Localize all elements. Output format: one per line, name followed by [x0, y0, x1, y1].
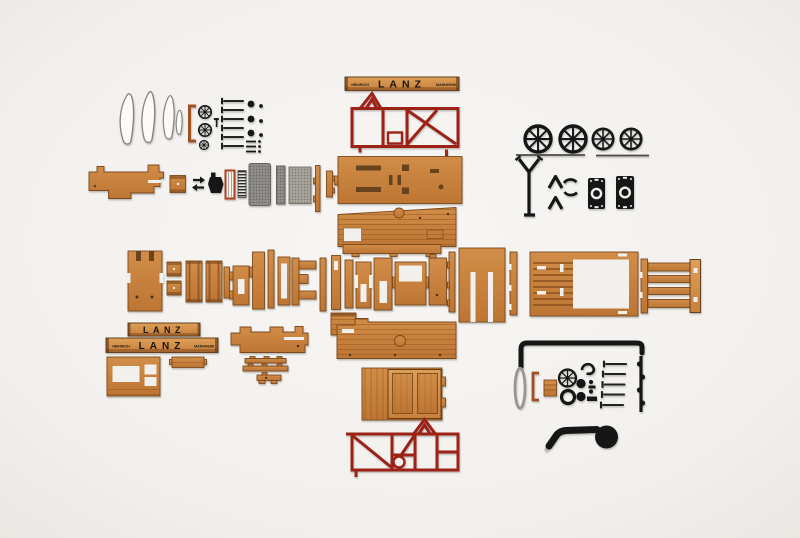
planked-side-panel-a: [338, 208, 456, 247]
beam-top-left-text: HEINRICH: [351, 83, 369, 87]
notched-strip: [509, 252, 518, 315]
model-kit-scene: HEINRICH LANZ MANNHEIM: [0, 0, 800, 538]
beam-small-text: LANZ: [143, 325, 185, 335]
beam-top-main-text: LANZ: [378, 79, 426, 91]
mesh-screens: [249, 164, 311, 206]
side-strip: [448, 252, 456, 312]
pillar-strip: [268, 250, 274, 308]
flywheel: [559, 370, 576, 387]
slotted-panel: [374, 258, 392, 310]
beam-large-left-text: HEINRICH: [112, 345, 130, 349]
side-rail-strip: [640, 259, 648, 313]
slatted-bed-frame: [530, 252, 638, 316]
cargo-floor-plate: [335, 150, 463, 204]
beam-large-main-text: LANZ: [139, 341, 186, 352]
door-panel: [362, 368, 446, 420]
nameplate-beam-large: HEINRICH LANZ MANNHEIM: [106, 338, 218, 353]
planked-side-panel-b: [337, 319, 456, 359]
frame-loop: [278, 257, 290, 305]
beam-large-right-text: MANNHEIM: [194, 345, 214, 349]
radiator-frame: [226, 171, 235, 199]
cab-front-panel: [107, 357, 160, 396]
spacer-strip: [224, 267, 230, 298]
axle-strips: [243, 357, 288, 372]
front-axle-plate: [127, 251, 164, 311]
window-bracket: [393, 262, 429, 305]
roof-plank: [170, 357, 207, 368]
backrest-panel: [429, 255, 447, 306]
top-rail-strip: [343, 245, 441, 257]
wheel-axle-rods: [516, 155, 649, 156]
radiator-grille: [238, 171, 246, 198]
toolbox-block: [170, 176, 186, 193]
beam-top-right-text: MANNHEIM: [436, 83, 456, 87]
nameplate-beam-small: LANZ: [128, 323, 200, 336]
nameplate-beam-top: HEINRICH LANZ MANNHEIM: [345, 77, 459, 91]
wood-block-small: [544, 380, 557, 396]
pillar-strip-set: [320, 256, 353, 312]
model-kit-photo: HEINRICH LANZ MANNHEIM: [0, 0, 800, 538]
seat-back-panel: [459, 248, 505, 322]
h-bracket: [355, 262, 373, 308]
